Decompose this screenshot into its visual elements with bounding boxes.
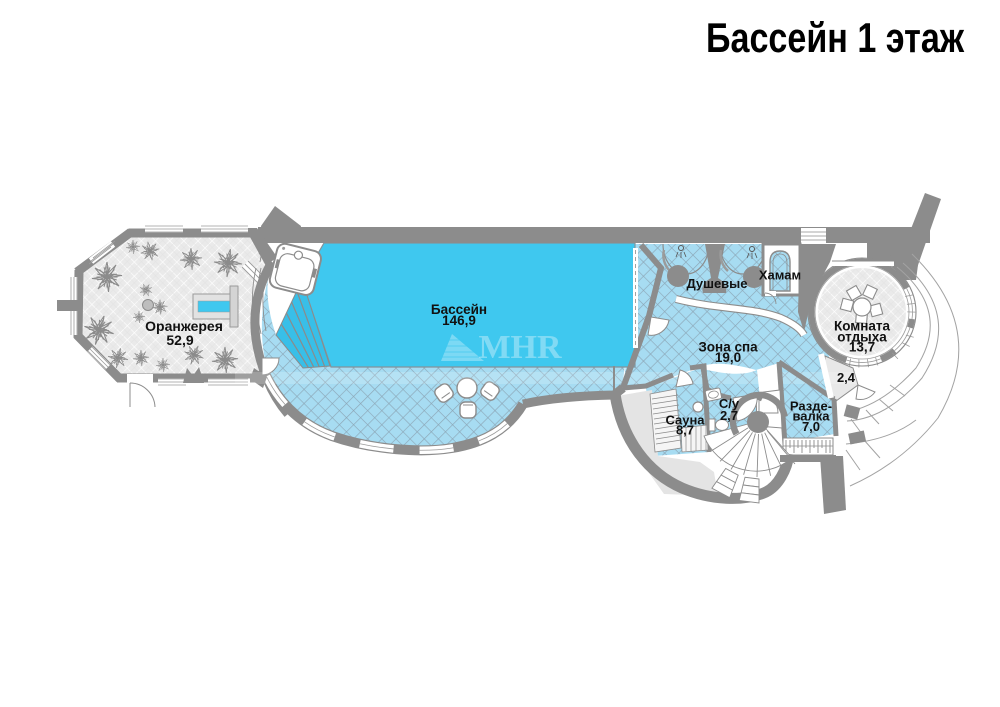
svg-text:MHR: MHR — [478, 329, 562, 366]
svg-text:146,9: 146,9 — [442, 313, 476, 328]
svg-text:8,7: 8,7 — [676, 423, 694, 438]
svg-text:13,7: 13,7 — [849, 340, 875, 355]
svg-text:Душевые: Душевые — [686, 276, 747, 291]
svg-text:19,0: 19,0 — [715, 350, 741, 365]
svg-text:Хамам: Хамам — [759, 268, 801, 283]
svg-text:2,7: 2,7 — [720, 408, 738, 423]
svg-text:52,9: 52,9 — [166, 332, 193, 348]
svg-text:2,4: 2,4 — [837, 370, 856, 385]
svg-text:7,0: 7,0 — [802, 419, 820, 434]
svg-text:Бассейн 1 этаж: Бассейн 1 этаж — [706, 14, 965, 61]
